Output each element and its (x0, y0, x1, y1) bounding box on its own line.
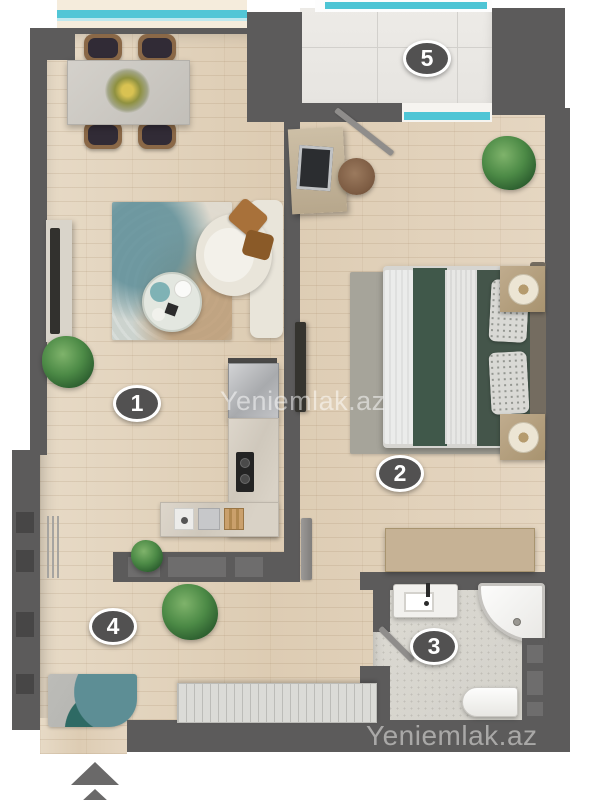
room-badge-4: 4 (89, 608, 137, 645)
sink-faucet (426, 583, 430, 597)
shelf-niche (527, 702, 543, 716)
nightstand-lamp (508, 422, 539, 453)
dining-chair (84, 34, 122, 62)
plant-hallway (162, 584, 218, 640)
room-number: 4 (107, 613, 120, 640)
shelf-niche (527, 645, 543, 663)
chair-seat (142, 38, 172, 58)
chair-seat (142, 125, 172, 145)
balcony-tile-line (377, 8, 378, 112)
balcony-floor (300, 8, 497, 112)
chair-seat (88, 125, 118, 145)
wall-balcony-right (492, 8, 565, 115)
wardrobe (177, 683, 377, 723)
bedroom-door (301, 518, 312, 580)
shelf-niche (527, 671, 543, 695)
laptop (296, 145, 333, 191)
table-item (164, 302, 178, 316)
threshold-glass (404, 112, 490, 120)
room-badge-5: 5 (403, 40, 451, 77)
balcony-tile-line (300, 47, 497, 48)
bed-duvet-mid (445, 270, 479, 444)
room-number: 5 (421, 45, 434, 72)
window-glass-line (57, 10, 247, 18)
bar-niche (168, 557, 226, 577)
cutting-board (224, 508, 244, 530)
shower-drain (513, 618, 521, 626)
room-number: 2 (394, 460, 407, 487)
window-top-left (57, 0, 247, 28)
table-centerpiece (105, 68, 150, 113)
floor-plan: 1 2 3 4 5 Yeniemlak.az Yeniemlak.az (0, 0, 600, 800)
cooktop (236, 452, 254, 492)
balcony-tile-line (457, 8, 458, 112)
watermark-center: Yeniemlak.az (220, 386, 386, 417)
entrance-arrow-icon (71, 762, 119, 785)
bar-niche (235, 557, 263, 577)
dining-chair (138, 121, 176, 149)
room-badge-1: 1 (113, 385, 161, 422)
toilet (462, 687, 518, 717)
burner (240, 474, 250, 484)
dresser (385, 528, 535, 572)
wall-right-main (545, 108, 570, 745)
radiator-slot (16, 674, 34, 694)
nightstand-lamp (508, 274, 539, 305)
plant-kitchen-small (131, 540, 163, 572)
coffee-table (142, 272, 202, 332)
radiator-slot (16, 550, 34, 572)
teal-plate (150, 282, 170, 302)
window-glass-line-light (57, 18, 247, 21)
bed-duvet-left (383, 270, 415, 444)
desk-chair (338, 158, 375, 195)
balcony-window-glass (325, 2, 487, 9)
coffee-machine (174, 508, 194, 530)
dining-chair (138, 34, 176, 62)
chair-seat (88, 38, 118, 58)
room-badge-2: 2 (376, 455, 424, 492)
hallway-rug (48, 674, 137, 727)
plant-living-room (42, 336, 94, 388)
tv-screen (50, 228, 60, 334)
balcony-window-top (315, 0, 492, 12)
wall-left-upper (30, 28, 47, 455)
wall-top-center (247, 12, 302, 122)
balcony-door-threshold (402, 103, 492, 122)
white-plate (174, 280, 192, 298)
small-plate (152, 308, 165, 321)
burner (240, 458, 250, 468)
toaster (198, 508, 220, 530)
plant-bedroom (482, 136, 536, 190)
entrance-arrow-small-icon (81, 789, 109, 800)
room-badge-3: 3 (410, 628, 458, 665)
wall-left-lower (12, 450, 40, 730)
room-number: 1 (131, 390, 144, 417)
bathroom-shelf-unit (522, 638, 548, 722)
bed-green-runner (413, 268, 447, 446)
dining-chair (84, 121, 122, 149)
watermark-bottom: Yeniemlak.az (366, 720, 538, 752)
machine-dot (181, 517, 188, 524)
room-number: 3 (428, 633, 441, 660)
wall-radiator (47, 516, 59, 578)
bed-pillow-patterned (488, 351, 529, 415)
radiator-slot (16, 512, 34, 533)
sink-drain (424, 601, 429, 606)
radiator-slot (16, 612, 34, 637)
bathroom-sink (393, 584, 458, 618)
